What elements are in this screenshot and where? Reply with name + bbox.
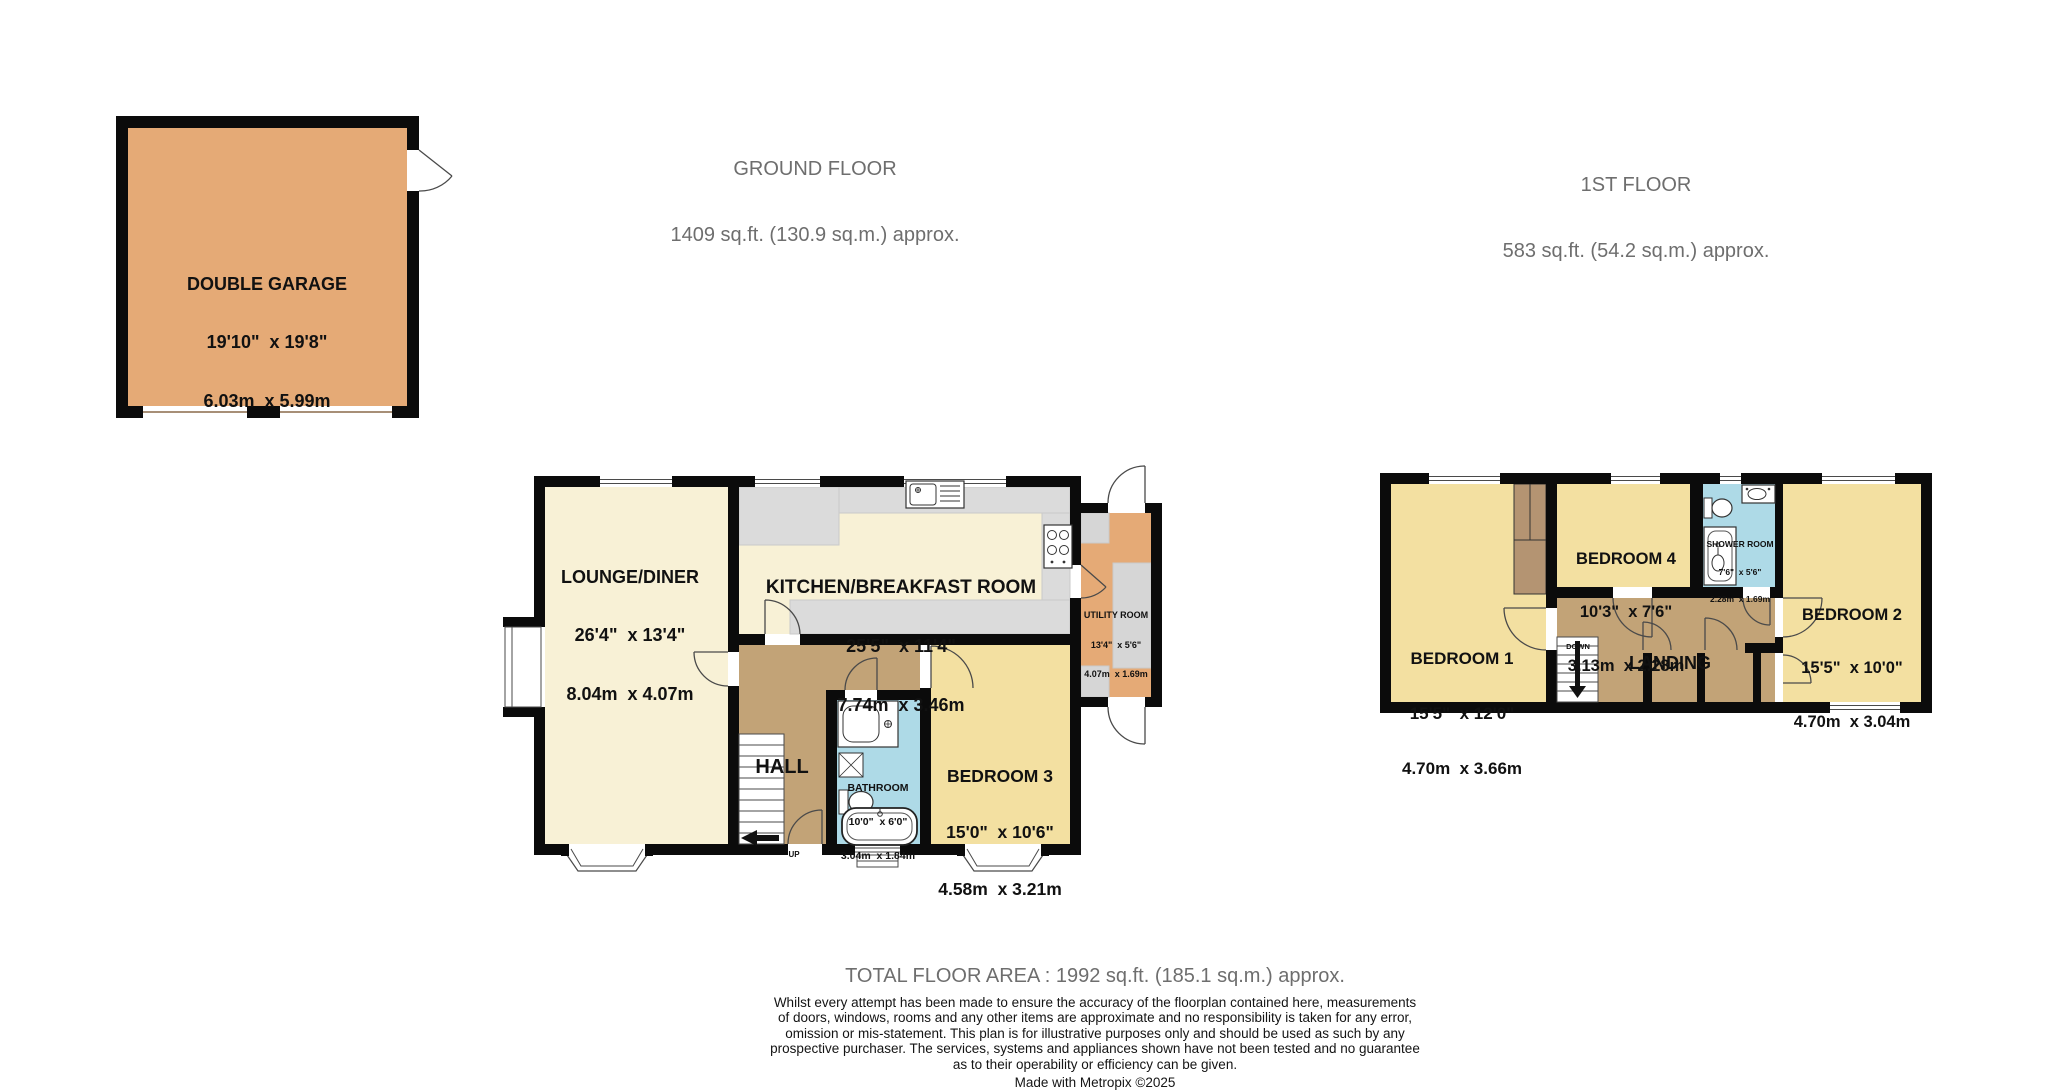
room-dims-metric: 4.70m x 3.04m: [1794, 714, 1911, 732]
landing-label: LANDING: [1629, 615, 1711, 712]
room-dims-imperial: 25'5" x 11'4": [766, 637, 1036, 656]
garage-side-door-arc: [419, 150, 452, 191]
room-dims-imperial: 15'0" x 10'6": [938, 823, 1062, 842]
room-name: BEDROOM 4: [1568, 551, 1685, 569]
disclaimer-line: Whilst every attempt has been made to en…: [774, 995, 1416, 1011]
disclaimer-line: of doors, windows, rooms and any other i…: [778, 1010, 1412, 1026]
room-dims-metric: 4.70m x 3.66m: [1402, 760, 1522, 778]
room-name: SHOWER ROOM: [1706, 540, 1773, 549]
room-dims-metric: 2.28m x 1.69m: [1706, 595, 1773, 604]
room-name: LANDING: [1629, 654, 1711, 673]
shower-toilet-fixture: [1704, 498, 1732, 518]
room-dims-imperial: 10'0" x 6'0": [841, 817, 915, 828]
shower-sink-fixture: [1742, 485, 1775, 503]
bedroom2-label: BEDROOM 2 15'5" x 10'0" 4.70m x 3.04m: [1794, 571, 1911, 767]
stairs-up-label: UP: [788, 834, 799, 877]
room-dims-metric: 3.04m x 1.84m: [841, 851, 915, 862]
room-dims-imperial: 15'5" x 12'0": [1402, 705, 1522, 723]
first-floor-area: 583 sq.ft. (54.2 sq.m.) approx.: [1503, 240, 1770, 262]
garage-label: DOUBLE GARAGE 19'10" x 19'8" 6.03m x 5.9…: [187, 236, 347, 450]
lounge-side-bay-window: [503, 617, 545, 717]
room-dims-metric: 6.03m x 5.99m: [187, 392, 347, 411]
ground-floor-header: GROUND FLOOR 1409 sq.ft. (130.9 sq.m.) a…: [670, 114, 959, 290]
ground-floor-area: 1409 sq.ft. (130.9 sq.m.) approx.: [670, 224, 959, 246]
bedroom3-label: BEDROOM 3 15'0" x 10'6" 4.58m x 3.21m: [938, 729, 1062, 937]
utility-rear-door-arc: [1108, 707, 1145, 744]
utility-label: UTILITY ROOM 13'4" x 5'6" 4.07m x 1.69m: [1084, 592, 1148, 699]
stairs-down-label: DOWN: [1566, 627, 1590, 667]
bedroom1-label: BEDROOM 1 15'5" x 12'0" 4.70m x 3.66m: [1402, 613, 1522, 815]
ground-floor-title: GROUND FLOOR: [670, 158, 959, 180]
room-dims-metric: 8.04m x 4.07m: [561, 685, 699, 704]
room-dims-imperial: 19'10" x 19'8": [187, 333, 347, 352]
wardrobe: [1514, 484, 1546, 594]
room-name: BEDROOM 2: [1794, 607, 1911, 625]
utility-back-door-arc: [1108, 466, 1145, 503]
room-name: KITCHEN/BREAKFAST ROOM: [766, 578, 1036, 599]
room-name: BEDROOM 1: [1402, 650, 1522, 668]
disclaimer-line: prospective purchaser. The services, sys…: [770, 1041, 1420, 1057]
hall-label: HALL: [755, 714, 808, 822]
room-name: HALL: [755, 757, 808, 779]
room-name: BEDROOM 3: [938, 767, 1062, 786]
lounge-label: LOUNGE/DINER 26'4" x 13'4" 8.04m x 4.07m: [561, 529, 699, 743]
bathroom-label: BATHROOM 10'0" x 6'0" 3.04m x 1.84m: [841, 760, 915, 885]
room-dims-imperial: 13'4" x 5'6": [1084, 641, 1148, 651]
room-dims-imperial: 26'4" x 13'4": [561, 626, 699, 645]
room-name: UTILITY ROOM: [1084, 611, 1148, 621]
room-dims-metric: 7.74m x 3.46m: [766, 696, 1036, 715]
room-name: BATHROOM: [841, 783, 915, 794]
disclaimer-line: omission or mis-statement. This plan is …: [785, 1026, 1405, 1042]
room-name: LOUNGE/DINER: [561, 568, 699, 587]
room-dims-imperial: 15'5" x 10'0": [1794, 660, 1911, 678]
room-dims-metric: 4.58m x 3.21m: [938, 880, 1062, 899]
shower-room-label: SHOWER ROOM 7'6" x 5'6" 2.28m x 1.69m: [1706, 522, 1773, 623]
first-floor-title: 1ST FLOOR: [1503, 174, 1770, 196]
floorplan-page: GROUND FLOOR 1409 sq.ft. (130.9 sq.m.) a…: [0, 0, 2048, 1091]
kitchen-sink-fixture: [906, 481, 964, 508]
room-dims-metric: 4.07m x 1.69m: [1084, 670, 1148, 680]
credit-line: Made with Metropix ©2025: [1015, 1075, 1176, 1091]
hob-fixture: [1044, 525, 1072, 568]
total-floor-area: TOTAL FLOOR AREA : 1992 sq.ft. (185.1 sq…: [845, 965, 1345, 988]
room-dims-imperial: 7'6" x 5'6": [1706, 568, 1773, 577]
lounge-bay-window: [561, 844, 653, 871]
disclaimer-line: as to their operability or efficiency ca…: [953, 1057, 1237, 1073]
first-floor-header: 1ST FLOOR 583 sq.ft. (54.2 sq.m.) approx…: [1503, 130, 1770, 306]
room-name: DOUBLE GARAGE: [187, 275, 347, 294]
